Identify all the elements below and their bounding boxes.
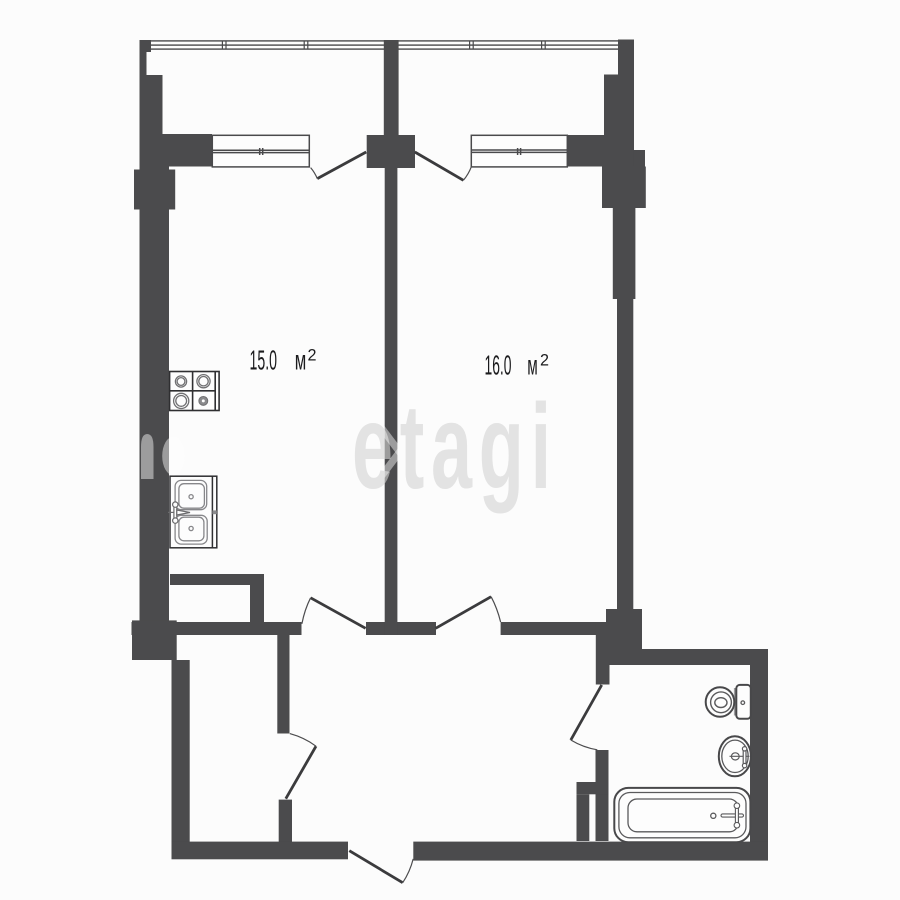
svg-text:м: м	[295, 344, 307, 376]
svg-text:15.0: 15.0	[250, 344, 278, 376]
svg-text:м: м	[527, 349, 538, 381]
svg-text:2: 2	[308, 346, 317, 365]
svg-text:etagi: etagi	[352, 379, 558, 514]
svg-text:2: 2	[540, 351, 549, 370]
svg-text:16.0: 16.0	[485, 349, 512, 381]
